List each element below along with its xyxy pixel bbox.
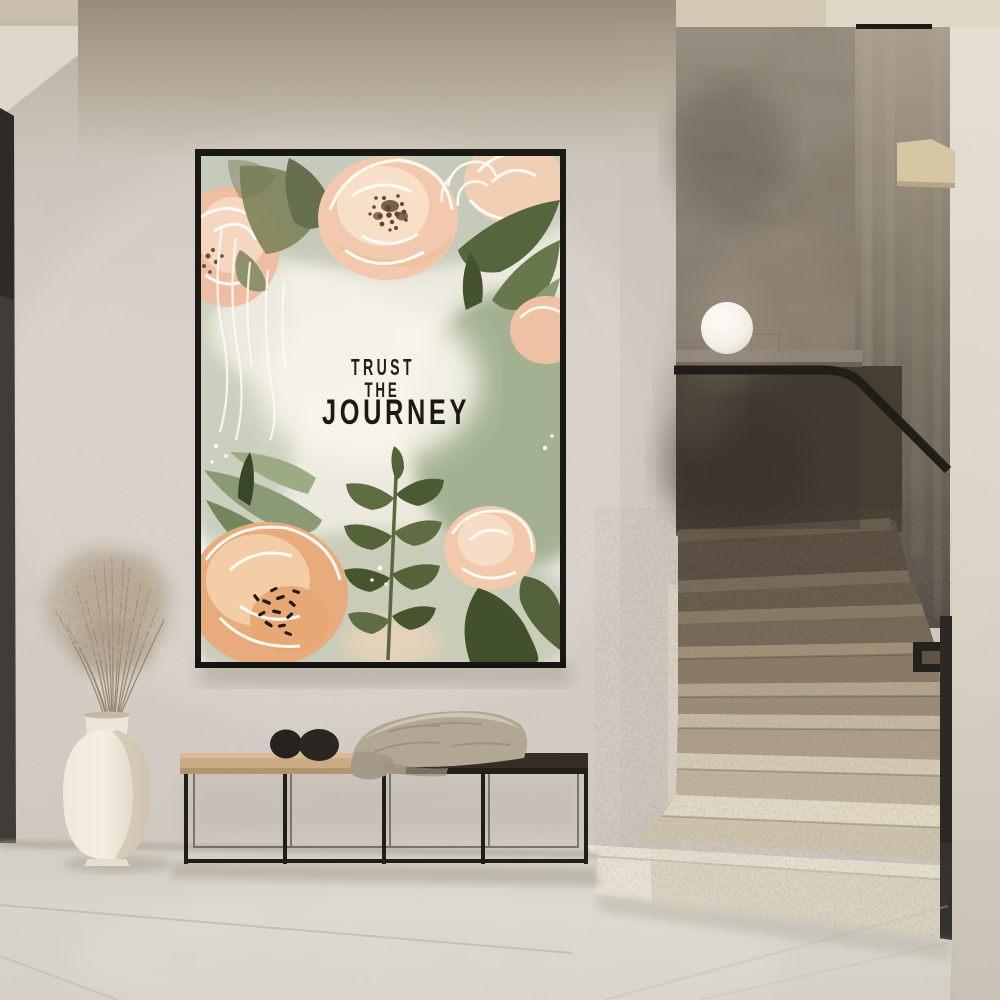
- svg-text:TRUST: TRUST: [351, 354, 415, 380]
- svg-text:JOURNEY: JOURNEY: [322, 393, 470, 432]
